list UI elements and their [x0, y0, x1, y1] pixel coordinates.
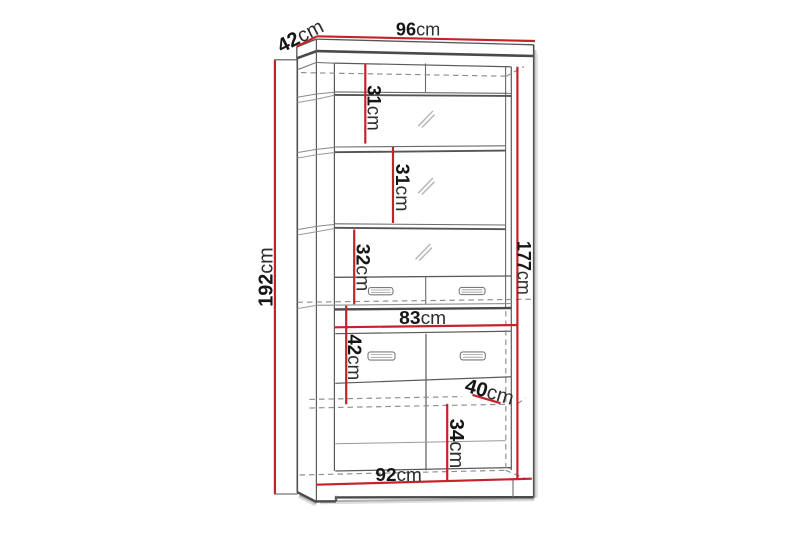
svg-text:83cm: 83cm — [399, 307, 446, 328]
svg-text:42cm: 42cm — [343, 334, 365, 380]
svg-text:92cm: 92cm — [375, 464, 421, 485]
svg-text:34cm: 34cm — [445, 419, 467, 469]
svg-text:192cm: 192cm — [255, 247, 277, 307]
svg-text:31cm: 31cm — [391, 164, 413, 212]
svg-text:32cm: 32cm — [351, 244, 373, 291]
svg-text:177cm: 177cm — [513, 241, 535, 295]
svg-text:40cm: 40cm — [462, 375, 516, 410]
svg-text:31cm: 31cm — [363, 85, 385, 131]
svg-text:96cm: 96cm — [396, 18, 440, 39]
